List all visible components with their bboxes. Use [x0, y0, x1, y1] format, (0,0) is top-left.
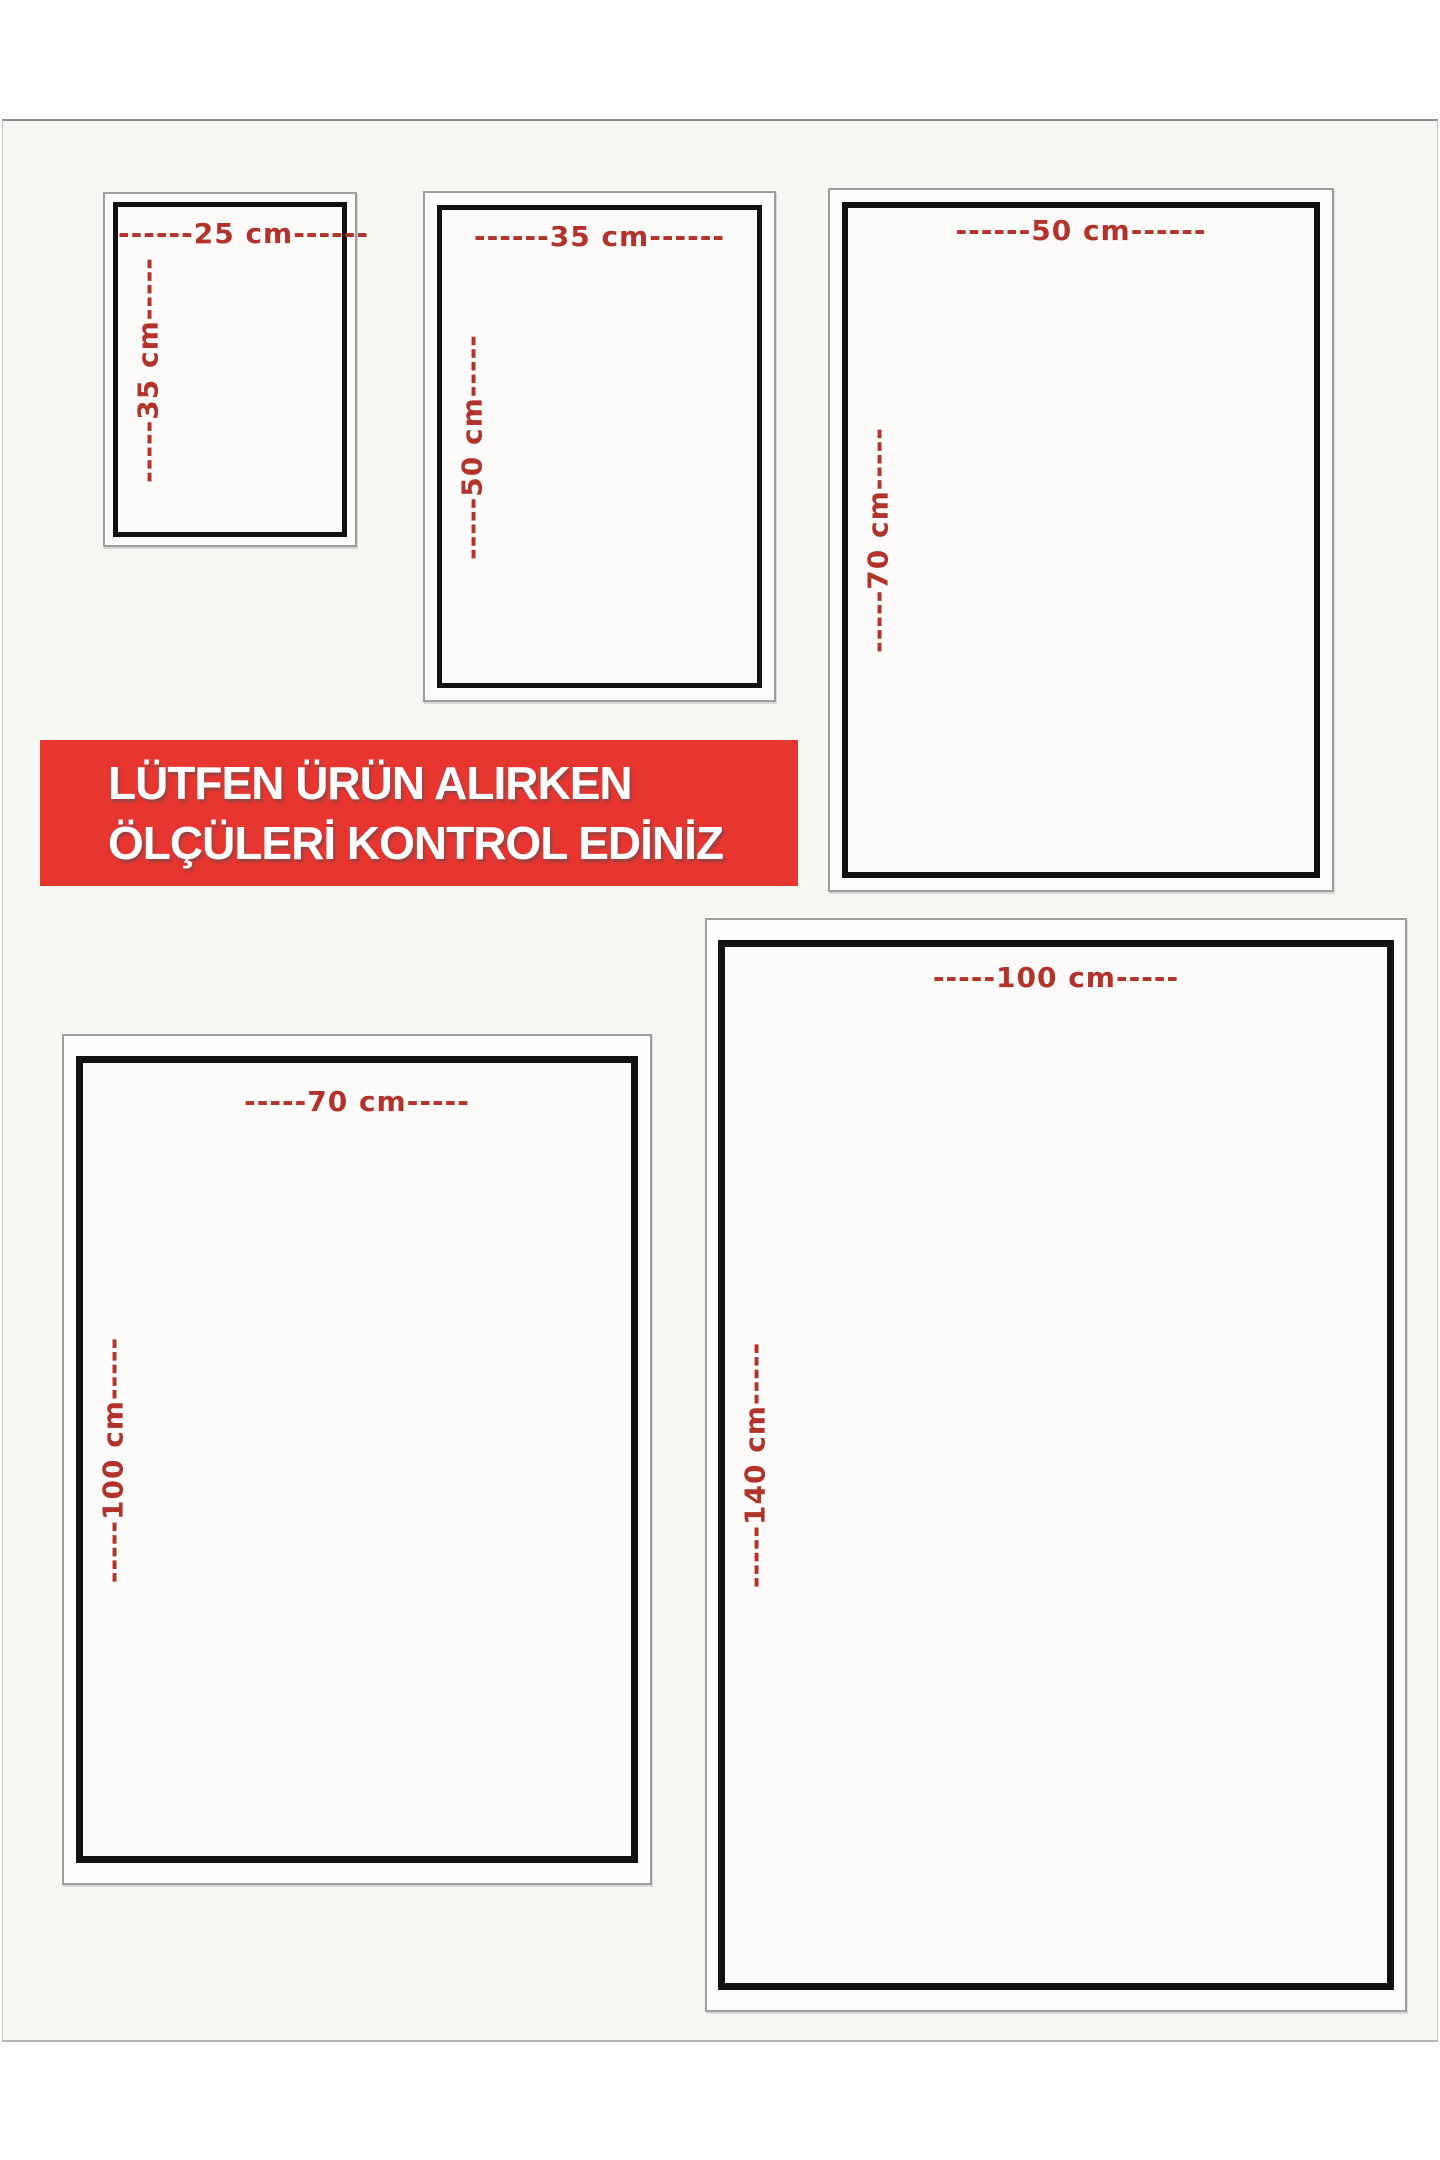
height-dimension-label: -----140 cm-----: [739, 1342, 772, 1588]
height-dimension-label: -----70 cm-----: [862, 427, 895, 653]
height-dimension-label: -----35 cm-----: [132, 257, 165, 483]
size-frame-35x50: ------35 cm------ -----50 cm-----: [437, 205, 762, 688]
width-dimension-label: ------50 cm------: [848, 214, 1314, 247]
notice-banner-line2: ÖLÇÜLERİ KONTROL EDİNİZ: [108, 813, 798, 873]
size-box-50x70: ------50 cm------ -----70 cm-----: [828, 188, 1334, 892]
size-box-25x35: ------25 cm------ -----35 cm-----: [103, 192, 357, 547]
width-dimension-label: -----100 cm-----: [725, 961, 1387, 994]
notice-banner: LÜTFEN ÜRÜN ALIRKEN ÖLÇÜLERİ KONTROL EDİ…: [40, 740, 798, 886]
notice-banner-line1: LÜTFEN ÜRÜN ALIRKEN: [108, 753, 798, 813]
size-box-35x50: ------35 cm------ -----50 cm-----: [423, 191, 776, 702]
size-frame-100x140: -----100 cm----- -----140 cm-----: [718, 940, 1394, 1990]
width-dimension-label: ------35 cm------: [442, 220, 757, 253]
size-frame-25x35: ------25 cm------ -----35 cm-----: [113, 202, 347, 537]
width-dimension-label: -----70 cm-----: [83, 1085, 631, 1118]
width-dimension-label: ------25 cm------: [118, 217, 342, 250]
size-frame-50x70: ------50 cm------ -----70 cm-----: [842, 202, 1320, 878]
size-box-100x140: -----100 cm----- -----140 cm-----: [705, 918, 1407, 2012]
size-frame-70x100: -----70 cm----- -----100 cm-----: [76, 1056, 638, 1863]
height-dimension-label: -----100 cm-----: [97, 1336, 130, 1582]
size-box-70x100: -----70 cm----- -----100 cm-----: [62, 1034, 652, 1885]
height-dimension-label: -----50 cm-----: [456, 334, 489, 560]
